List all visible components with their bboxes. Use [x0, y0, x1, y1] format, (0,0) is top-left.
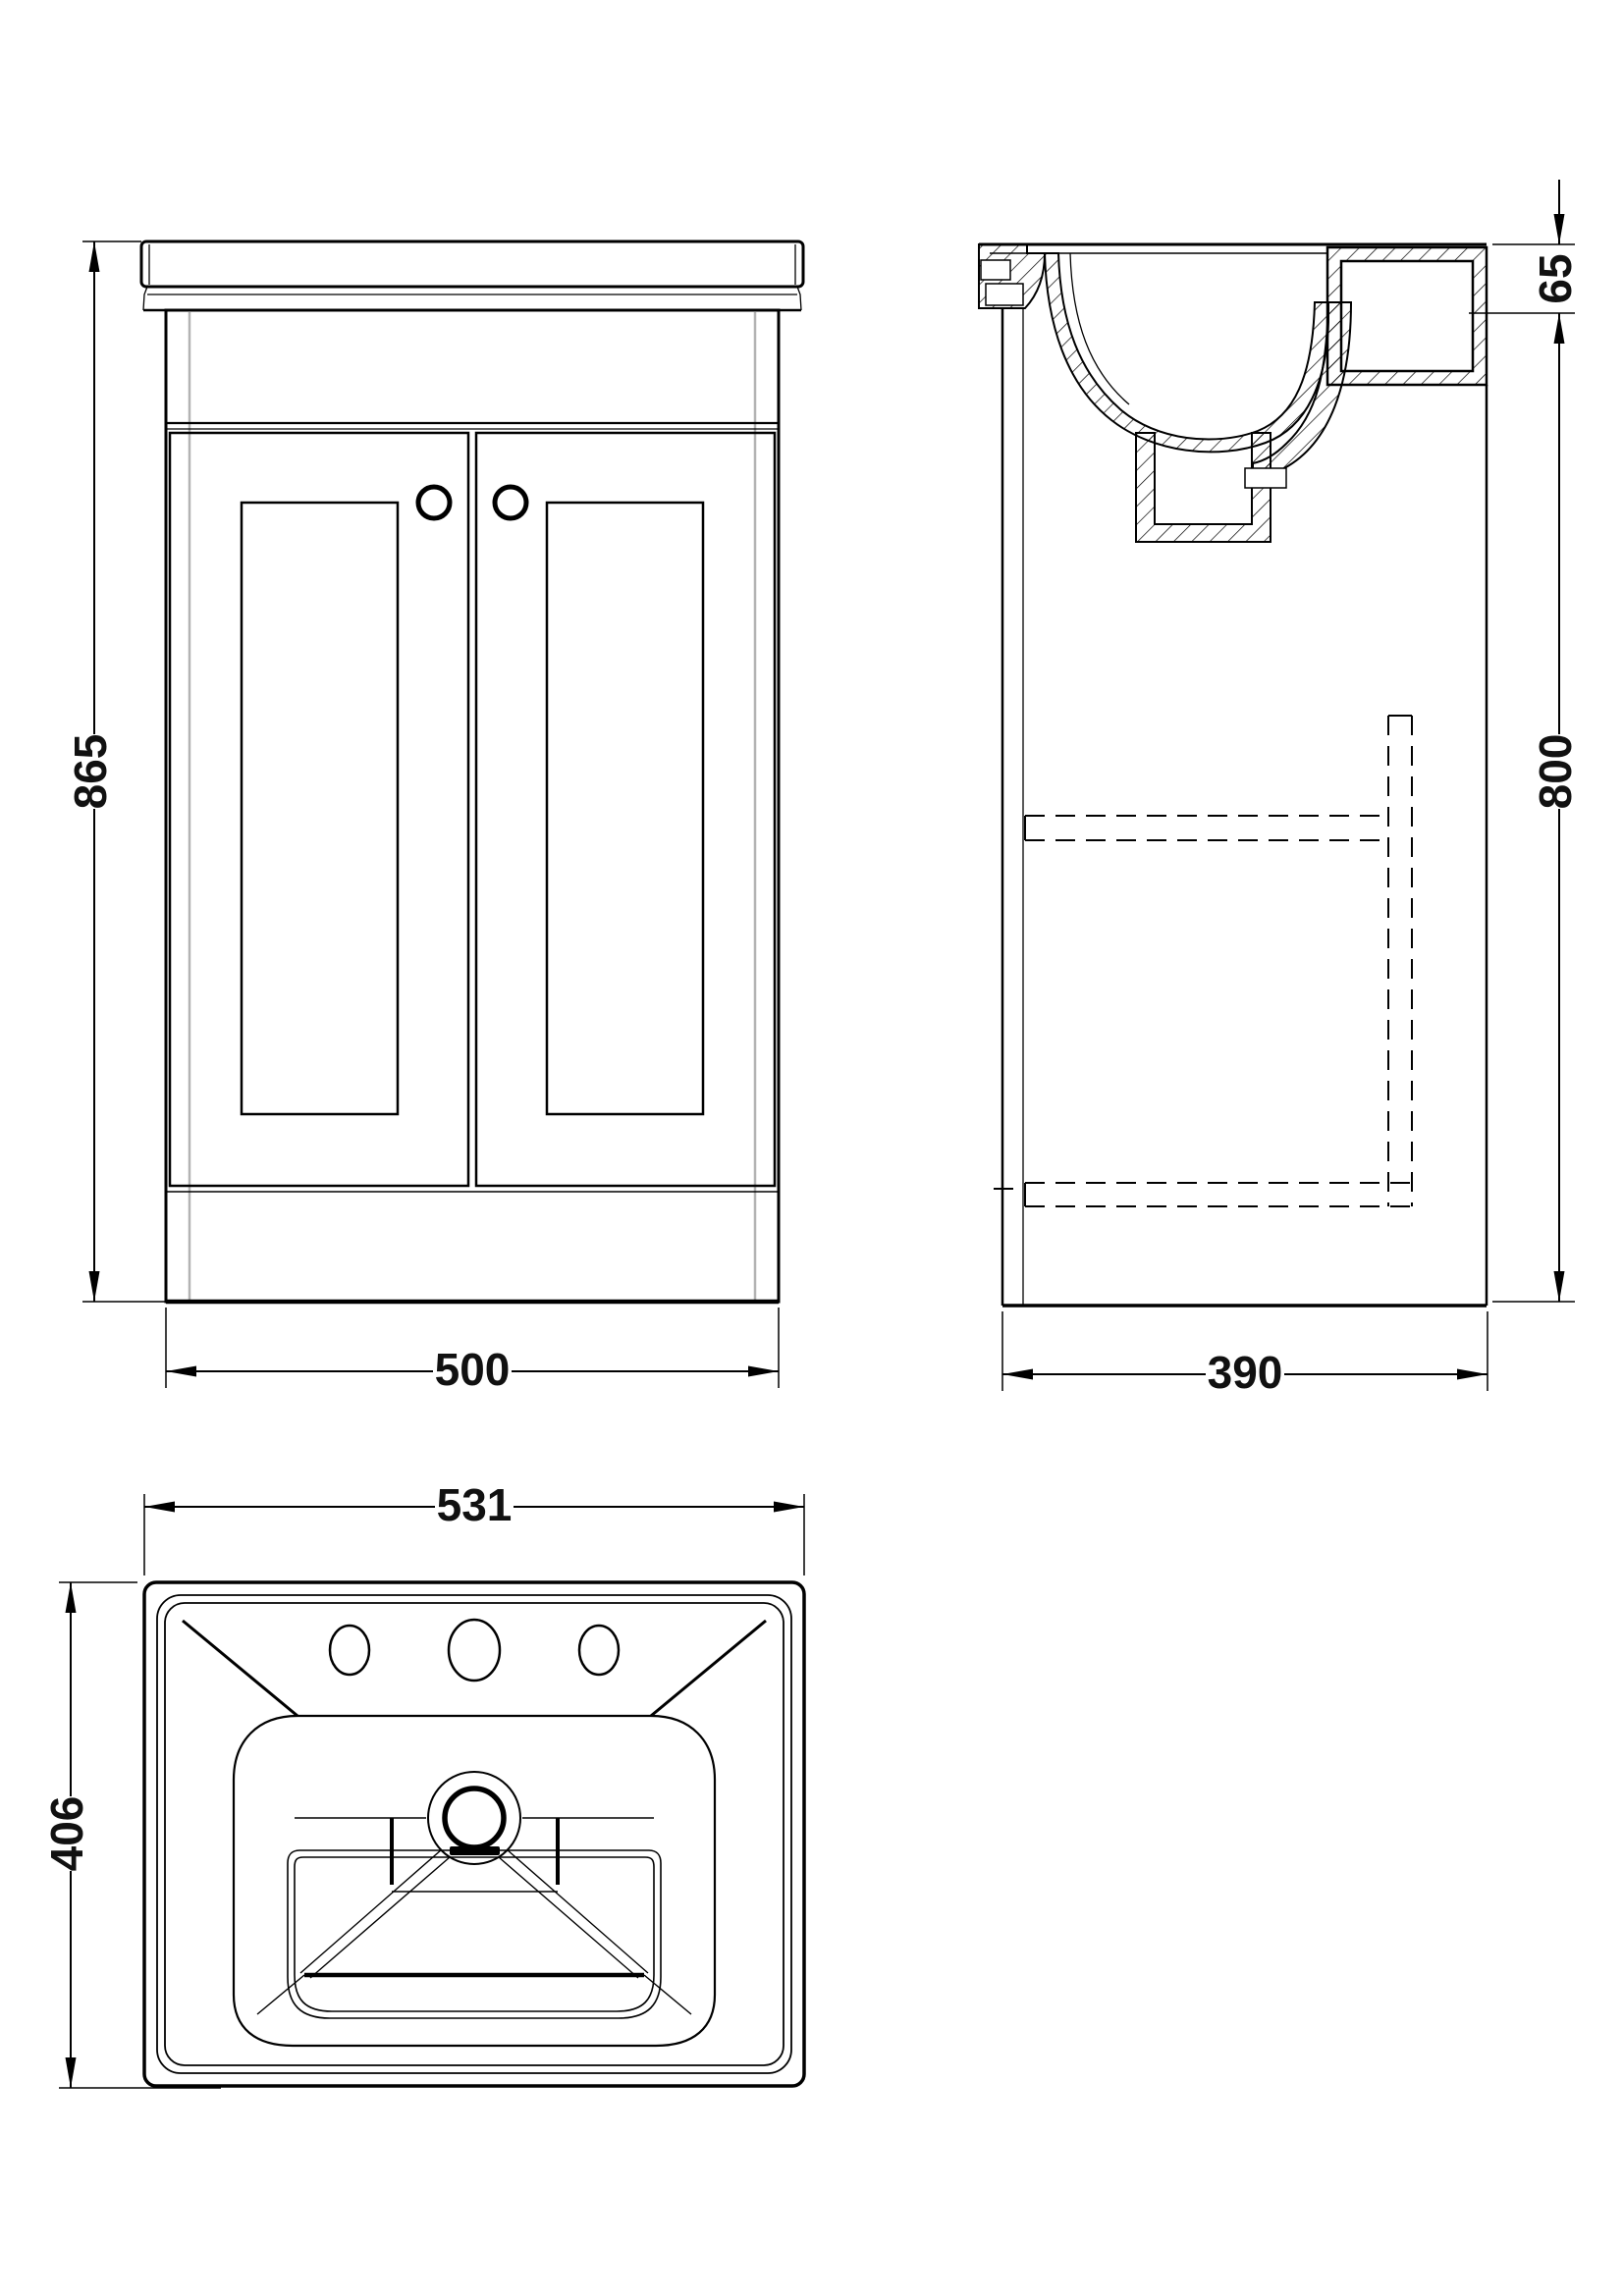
- cabinet-body: [166, 310, 779, 1302]
- technical-drawing-page: 865 500: [0, 0, 1623, 2296]
- dimension-531-label: 531: [437, 1479, 513, 1530]
- hidden-shelf-lines: [1025, 716, 1412, 1206]
- dimension-500: 500: [166, 1308, 779, 1395]
- dimension-531: 531: [144, 1479, 804, 1575]
- door-handle-left: [418, 487, 450, 518]
- dimension-865-label: 865: [65, 734, 116, 810]
- dimension-406: 406: [41, 1582, 221, 2088]
- bowl-outer-outline: [234, 1716, 715, 2046]
- door-right: [476, 433, 775, 1186]
- front-view: [141, 241, 803, 1302]
- rim-diagonal-left: [183, 1621, 298, 1716]
- door-handle-right: [495, 487, 526, 518]
- door-panel-left: [242, 503, 398, 1114]
- bowl-floor-creases: [257, 1849, 691, 2014]
- side-view: [979, 244, 1487, 1306]
- dimension-800-label: 800: [1530, 734, 1581, 810]
- cornice-top: [141, 241, 803, 287]
- dimension-390: 390: [1002, 1311, 1488, 1398]
- dimension-65-label: 65: [1530, 253, 1581, 303]
- basin-plan-view: [144, 1582, 804, 2086]
- plan-dimensions: 531 406: [41, 1479, 804, 2088]
- basin-rim-line-2: [165, 1603, 784, 2065]
- basin-outline: [144, 1582, 804, 2086]
- cornice-moulding: [143, 287, 801, 310]
- rim-step-notch-1: [981, 260, 1010, 280]
- dimension-406-label: 406: [41, 1796, 92, 1872]
- rim-step-notch-2: [986, 284, 1023, 305]
- plughole: [445, 1789, 504, 1847]
- rim-diagonal-right: [651, 1621, 766, 1716]
- door-panel-right: [547, 503, 703, 1114]
- bowl-wall: [1045, 253, 1328, 452]
- overflow-drain-entry: [1245, 468, 1286, 488]
- dimension-390-label: 390: [1208, 1347, 1283, 1398]
- tap-hole-left: [330, 1626, 369, 1675]
- basin-cross-section: [979, 244, 1487, 542]
- basin-rim-line-1: [157, 1595, 791, 2073]
- tap-hole-right: [579, 1626, 619, 1675]
- dimension-800: 800: [1492, 313, 1581, 1302]
- dimension-500-label: 500: [435, 1344, 511, 1395]
- dimension-865: 865: [65, 241, 166, 1302]
- drawing-canvas: 865 500: [0, 0, 1623, 2296]
- tap-hole-center: [449, 1620, 500, 1681]
- bowl-inner-outline-2: [295, 1857, 654, 2011]
- bowl-inner-outline-1: [288, 1850, 661, 2018]
- door-left: [170, 433, 468, 1186]
- front-dimensions: 865 500: [65, 241, 779, 1395]
- side-dimensions: 65 800 390: [1002, 180, 1581, 1398]
